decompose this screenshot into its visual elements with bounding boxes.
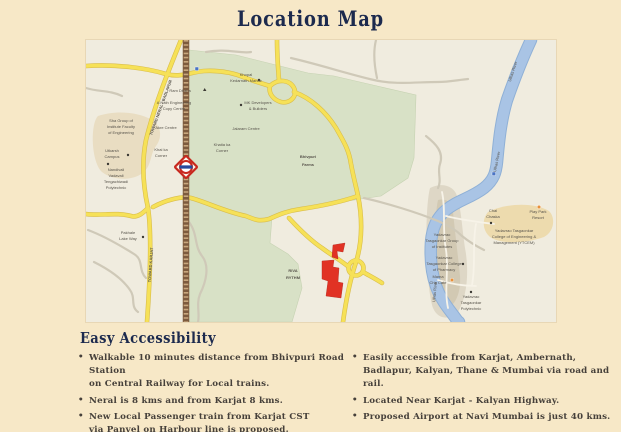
svg-text:Cha Café: Cha Café: [430, 280, 448, 285]
svg-text:Tasgaonkar College: Tasgaonkar College: [426, 261, 462, 266]
accessibility-right-list: Easily accessible from Karjat, Ambernath…: [352, 352, 614, 427]
label-ram-dhaba: Ram Dhaba: [169, 88, 191, 93]
svg-text:Resort: Resort: [532, 215, 545, 220]
svg-text:Copy Centre: Copy Centre: [163, 106, 186, 111]
accessibility-heading: Easy Accessibility: [80, 330, 231, 347]
page-title: Location Map: [0, 6, 621, 31]
svg-text:RYTHM: RYTHM: [286, 275, 301, 280]
svg-text:Play Park: Play Park: [529, 209, 546, 214]
svg-text:Yadavrao: Yadavrao: [463, 294, 481, 299]
svg-text:College of Engineering &: College of Engineering &: [492, 234, 537, 239]
label-pakhale: Pakhale Lake Way: [119, 230, 137, 241]
svg-text:Yadavrao Tasgaonkar: Yadavrao Tasgaonkar: [495, 228, 534, 233]
svg-text:Corner: Corner: [216, 148, 229, 153]
svg-text:Khai ka: Khai ka: [154, 147, 168, 152]
svg-text:Mama: Mama: [432, 274, 444, 279]
label-jalaram-centre: Jalaram Centre: [232, 126, 260, 131]
bullet-item: New Local Passenger train from Karjat CS…: [78, 411, 360, 432]
svg-text:Chai: Chai: [489, 208, 497, 213]
location-map-graphic: TOWARD NERAL - BADLAPUR TOWARD KARJAT Ul…: [86, 40, 556, 322]
bullet-item: Proposed Airport at Navi Mumbai is just …: [352, 411, 614, 424]
svg-text:Tengachiwadi: Tengachiwadi: [104, 179, 128, 184]
bullet-item: Neral is 8 kms and from Karjat 8 kms.: [78, 395, 360, 408]
bullet-item: Walkable 10 minutes distance from Bhivpu…: [78, 352, 360, 392]
svg-text:Vadavali: Vadavali: [108, 173, 123, 178]
svg-text:Chaska: Chaska: [486, 214, 500, 219]
svg-text:Polytechnic: Polytechnic: [461, 306, 481, 311]
label-khaika-corner: Khai ka Corner: [154, 147, 168, 158]
label-akre-centre: Akre Centre: [155, 125, 177, 130]
svg-text:Institute Faculty: Institute Faculty: [107, 124, 135, 129]
label-sha-group: Sha Group of Institute Faculty of Engine…: [107, 118, 135, 135]
label-utkarsh-campus: Utkarsh Campus: [105, 148, 120, 159]
svg-text:Corner: Corner: [155, 153, 168, 158]
svg-text:of Pharmacy: of Pharmacy: [433, 267, 455, 272]
svg-text:RIVA: RIVA: [288, 268, 297, 273]
svg-text:Jalaram Centre: Jalaram Centre: [232, 126, 260, 131]
svg-text:Kedarnath Mandir: Kedarnath Mandir: [230, 78, 262, 83]
accessibility-left-list: Walkable 10 minutes distance from Bhivpu…: [78, 352, 360, 432]
svg-text:Farms: Farms: [302, 162, 315, 167]
poi-orange-icon: [450, 278, 454, 282]
svg-text:MK Developers: MK Developers: [244, 100, 271, 105]
blue-sign-icon: [195, 67, 199, 71]
svg-text:Lake Way: Lake Way: [119, 236, 137, 241]
accessibility-heading-text: Easy Accessibility: [80, 330, 216, 347]
svg-text:Tasgaonkar Group: Tasgaonkar Group: [426, 238, 460, 243]
svg-text:Pakhale: Pakhale: [121, 230, 136, 235]
svg-text:Polytechnic: Polytechnic: [106, 185, 126, 190]
svg-text:Akre Centre: Akre Centre: [155, 125, 177, 130]
svg-text:Nandivali: Nandivali: [108, 167, 125, 172]
svg-text:TOWARD KARJAT: TOWARD KARJAT: [147, 247, 154, 283]
svg-text:Ram Dhaba: Ram Dhaba: [169, 88, 191, 93]
svg-text:A Nath Engineering: A Nath Engineering: [157, 100, 191, 105]
svg-text:Campus: Campus: [105, 154, 120, 159]
label-ytcem: Yadavrao Tasgaonkar College of Engineeri…: [492, 228, 537, 245]
svg-text:Tasgaonkar: Tasgaonkar: [461, 300, 482, 305]
label-yt-polytechnic: Yadavrao Tasgaonkar Polytechnic: [461, 294, 482, 311]
svg-text:Utkarsh: Utkarsh: [105, 148, 119, 153]
svg-text:Management (YTCEM): Management (YTCEM): [493, 240, 535, 245]
svg-text:Yadavrao: Yadavrao: [436, 255, 454, 260]
svg-text:of Engineering: of Engineering: [108, 130, 134, 135]
svg-text:Bhivpuri: Bhivpuri: [300, 154, 316, 159]
bullet-item: Located Near Karjat - Kalyan Highway.: [352, 395, 614, 408]
location-map: TOWARD NERAL - BADLAPUR TOWARD KARJAT Ul…: [86, 40, 556, 322]
svg-text:Yadavrao: Yadavrao: [434, 232, 452, 237]
svg-text:Khatia ka: Khatia ka: [214, 142, 231, 147]
svg-text:Sha Group of: Sha Group of: [109, 118, 134, 123]
bullet-item: Easily accessible from Karjat, Ambernath…: [352, 352, 614, 392]
svg-text:& Builders: & Builders: [249, 106, 267, 111]
svg-text:Khopal: Khopal: [240, 72, 253, 77]
page-title-text: Location Map: [237, 6, 384, 31]
svg-text:of Institutes: of Institutes: [432, 244, 452, 249]
brochure-page: { "title": "Location Map", "accessibilit…: [0, 0, 621, 432]
label-toward-karjat: TOWARD KARJAT: [147, 247, 154, 283]
